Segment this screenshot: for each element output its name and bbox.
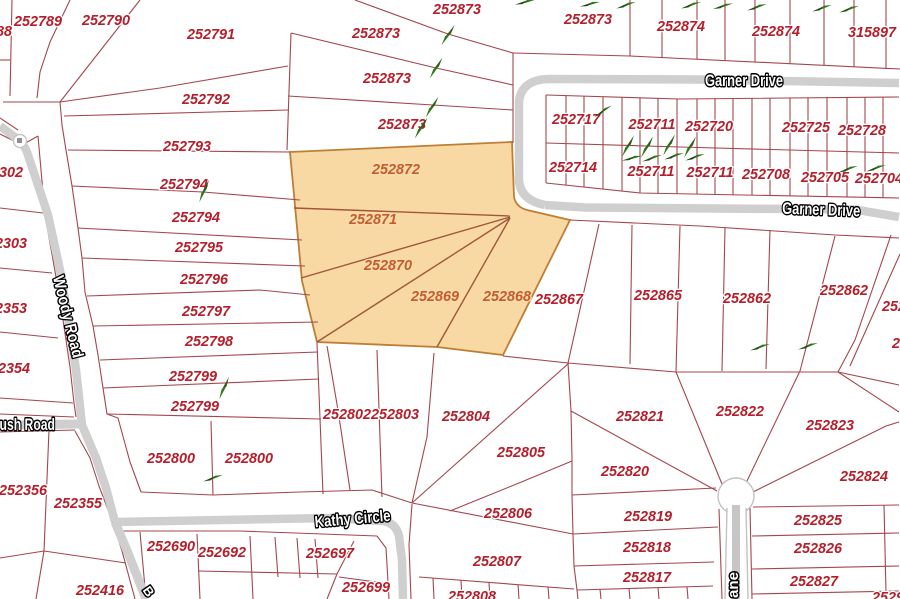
svg-text:252873: 252873 bbox=[432, 2, 481, 18]
svg-text:252714: 252714 bbox=[548, 160, 597, 176]
svg-text:252792: 252792 bbox=[181, 92, 230, 108]
svg-text:252808: 252808 bbox=[447, 589, 496, 599]
svg-text:315897: 315897 bbox=[848, 25, 897, 41]
svg-text:252800: 252800 bbox=[224, 451, 273, 467]
svg-text:252800: 252800 bbox=[146, 451, 195, 467]
svg-text:252728: 252728 bbox=[837, 123, 886, 139]
svg-text:252697: 252697 bbox=[305, 546, 355, 562]
svg-text:252825: 252825 bbox=[793, 513, 843, 529]
svg-text:252823: 252823 bbox=[805, 418, 854, 434]
svg-text:252799: 252799 bbox=[170, 399, 219, 415]
svg-text:252819: 252819 bbox=[623, 509, 672, 525]
svg-text:252805: 252805 bbox=[496, 445, 546, 461]
svg-text:252799: 252799 bbox=[168, 369, 217, 385]
svg-text:252416: 252416 bbox=[75, 583, 125, 599]
svg-text:252824: 252824 bbox=[839, 469, 888, 485]
svg-text:252818: 252818 bbox=[622, 540, 671, 556]
svg-text:252827: 252827 bbox=[789, 574, 839, 590]
svg-text:252874: 252874 bbox=[656, 19, 705, 35]
svg-text:252791: 252791 bbox=[186, 27, 235, 43]
svg-text:252807: 252807 bbox=[472, 554, 522, 570]
svg-text:252798: 252798 bbox=[184, 334, 233, 350]
svg-text:252725: 252725 bbox=[781, 120, 831, 136]
svg-text:252873: 252873 bbox=[362, 71, 411, 87]
svg-text:252872: 252872 bbox=[371, 162, 420, 178]
svg-text:252865: 252865 bbox=[633, 288, 683, 304]
svg-text:252717: 252717 bbox=[551, 112, 601, 128]
svg-text:252860: 252860 bbox=[891, 336, 900, 352]
svg-text:252803: 252803 bbox=[370, 407, 419, 423]
svg-text:252794: 252794 bbox=[159, 177, 208, 193]
svg-text:252302: 252302 bbox=[0, 165, 23, 181]
svg-text:252868: 252868 bbox=[482, 289, 531, 305]
svg-text:252788: 252788 bbox=[0, 24, 12, 40]
svg-text:252871: 252871 bbox=[348, 212, 397, 228]
svg-text:252826: 252826 bbox=[793, 541, 843, 557]
svg-text:252794: 252794 bbox=[171, 210, 220, 226]
svg-text:252793: 252793 bbox=[162, 139, 211, 155]
svg-text:252870: 252870 bbox=[363, 258, 412, 274]
svg-text:ane: ane bbox=[725, 572, 742, 598]
svg-text:252711: 252711 bbox=[627, 164, 675, 180]
svg-text:252355: 252355 bbox=[53, 496, 103, 512]
svg-text:252690: 252690 bbox=[146, 539, 195, 555]
svg-text:252708: 252708 bbox=[741, 167, 790, 183]
svg-text:252867: 252867 bbox=[534, 292, 584, 308]
svg-text:252862: 252862 bbox=[819, 283, 868, 299]
svg-text:252874: 252874 bbox=[751, 24, 800, 40]
svg-text:252797: 252797 bbox=[181, 304, 231, 320]
svg-text:252711: 252711 bbox=[628, 117, 676, 133]
svg-text:Garner Drive: Garner Drive bbox=[705, 72, 783, 90]
svg-text:252862: 252862 bbox=[722, 291, 771, 307]
svg-text:252802: 252802 bbox=[322, 407, 371, 423]
svg-text:Brush Road: Brush Road bbox=[0, 416, 55, 434]
svg-text:252692: 252692 bbox=[197, 545, 246, 561]
svg-text:252356: 252356 bbox=[0, 483, 48, 499]
svg-text:252806: 252806 bbox=[483, 506, 533, 522]
svg-text:252353: 252353 bbox=[0, 301, 27, 317]
svg-text:252901: 252901 bbox=[871, 590, 900, 599]
svg-text:252804: 252804 bbox=[441, 409, 490, 425]
svg-text:252795: 252795 bbox=[174, 240, 224, 256]
svg-text:252822: 252822 bbox=[715, 404, 764, 420]
svg-text:252789: 252789 bbox=[13, 14, 62, 30]
svg-text:252817: 252817 bbox=[622, 570, 672, 586]
svg-text:252821: 252821 bbox=[615, 409, 664, 425]
svg-text:252699: 252699 bbox=[341, 580, 390, 596]
svg-text:252711: 252711 bbox=[686, 165, 734, 181]
svg-text:252303: 252303 bbox=[0, 236, 27, 252]
svg-text:252704: 252704 bbox=[854, 171, 900, 187]
svg-text:252869: 252869 bbox=[410, 289, 459, 305]
svg-text:252873: 252873 bbox=[563, 12, 612, 28]
svg-text:252873: 252873 bbox=[351, 26, 400, 42]
svg-text:252790: 252790 bbox=[81, 13, 130, 29]
svg-text:252354: 252354 bbox=[0, 361, 30, 377]
svg-text:252705: 252705 bbox=[800, 170, 850, 186]
svg-text:252861: 252861 bbox=[881, 299, 900, 315]
svg-text:252820: 252820 bbox=[600, 464, 649, 480]
svg-text:252796: 252796 bbox=[179, 272, 229, 288]
svg-text:Garner Drive: Garner Drive bbox=[782, 200, 861, 221]
svg-text:252720: 252720 bbox=[684, 119, 733, 135]
